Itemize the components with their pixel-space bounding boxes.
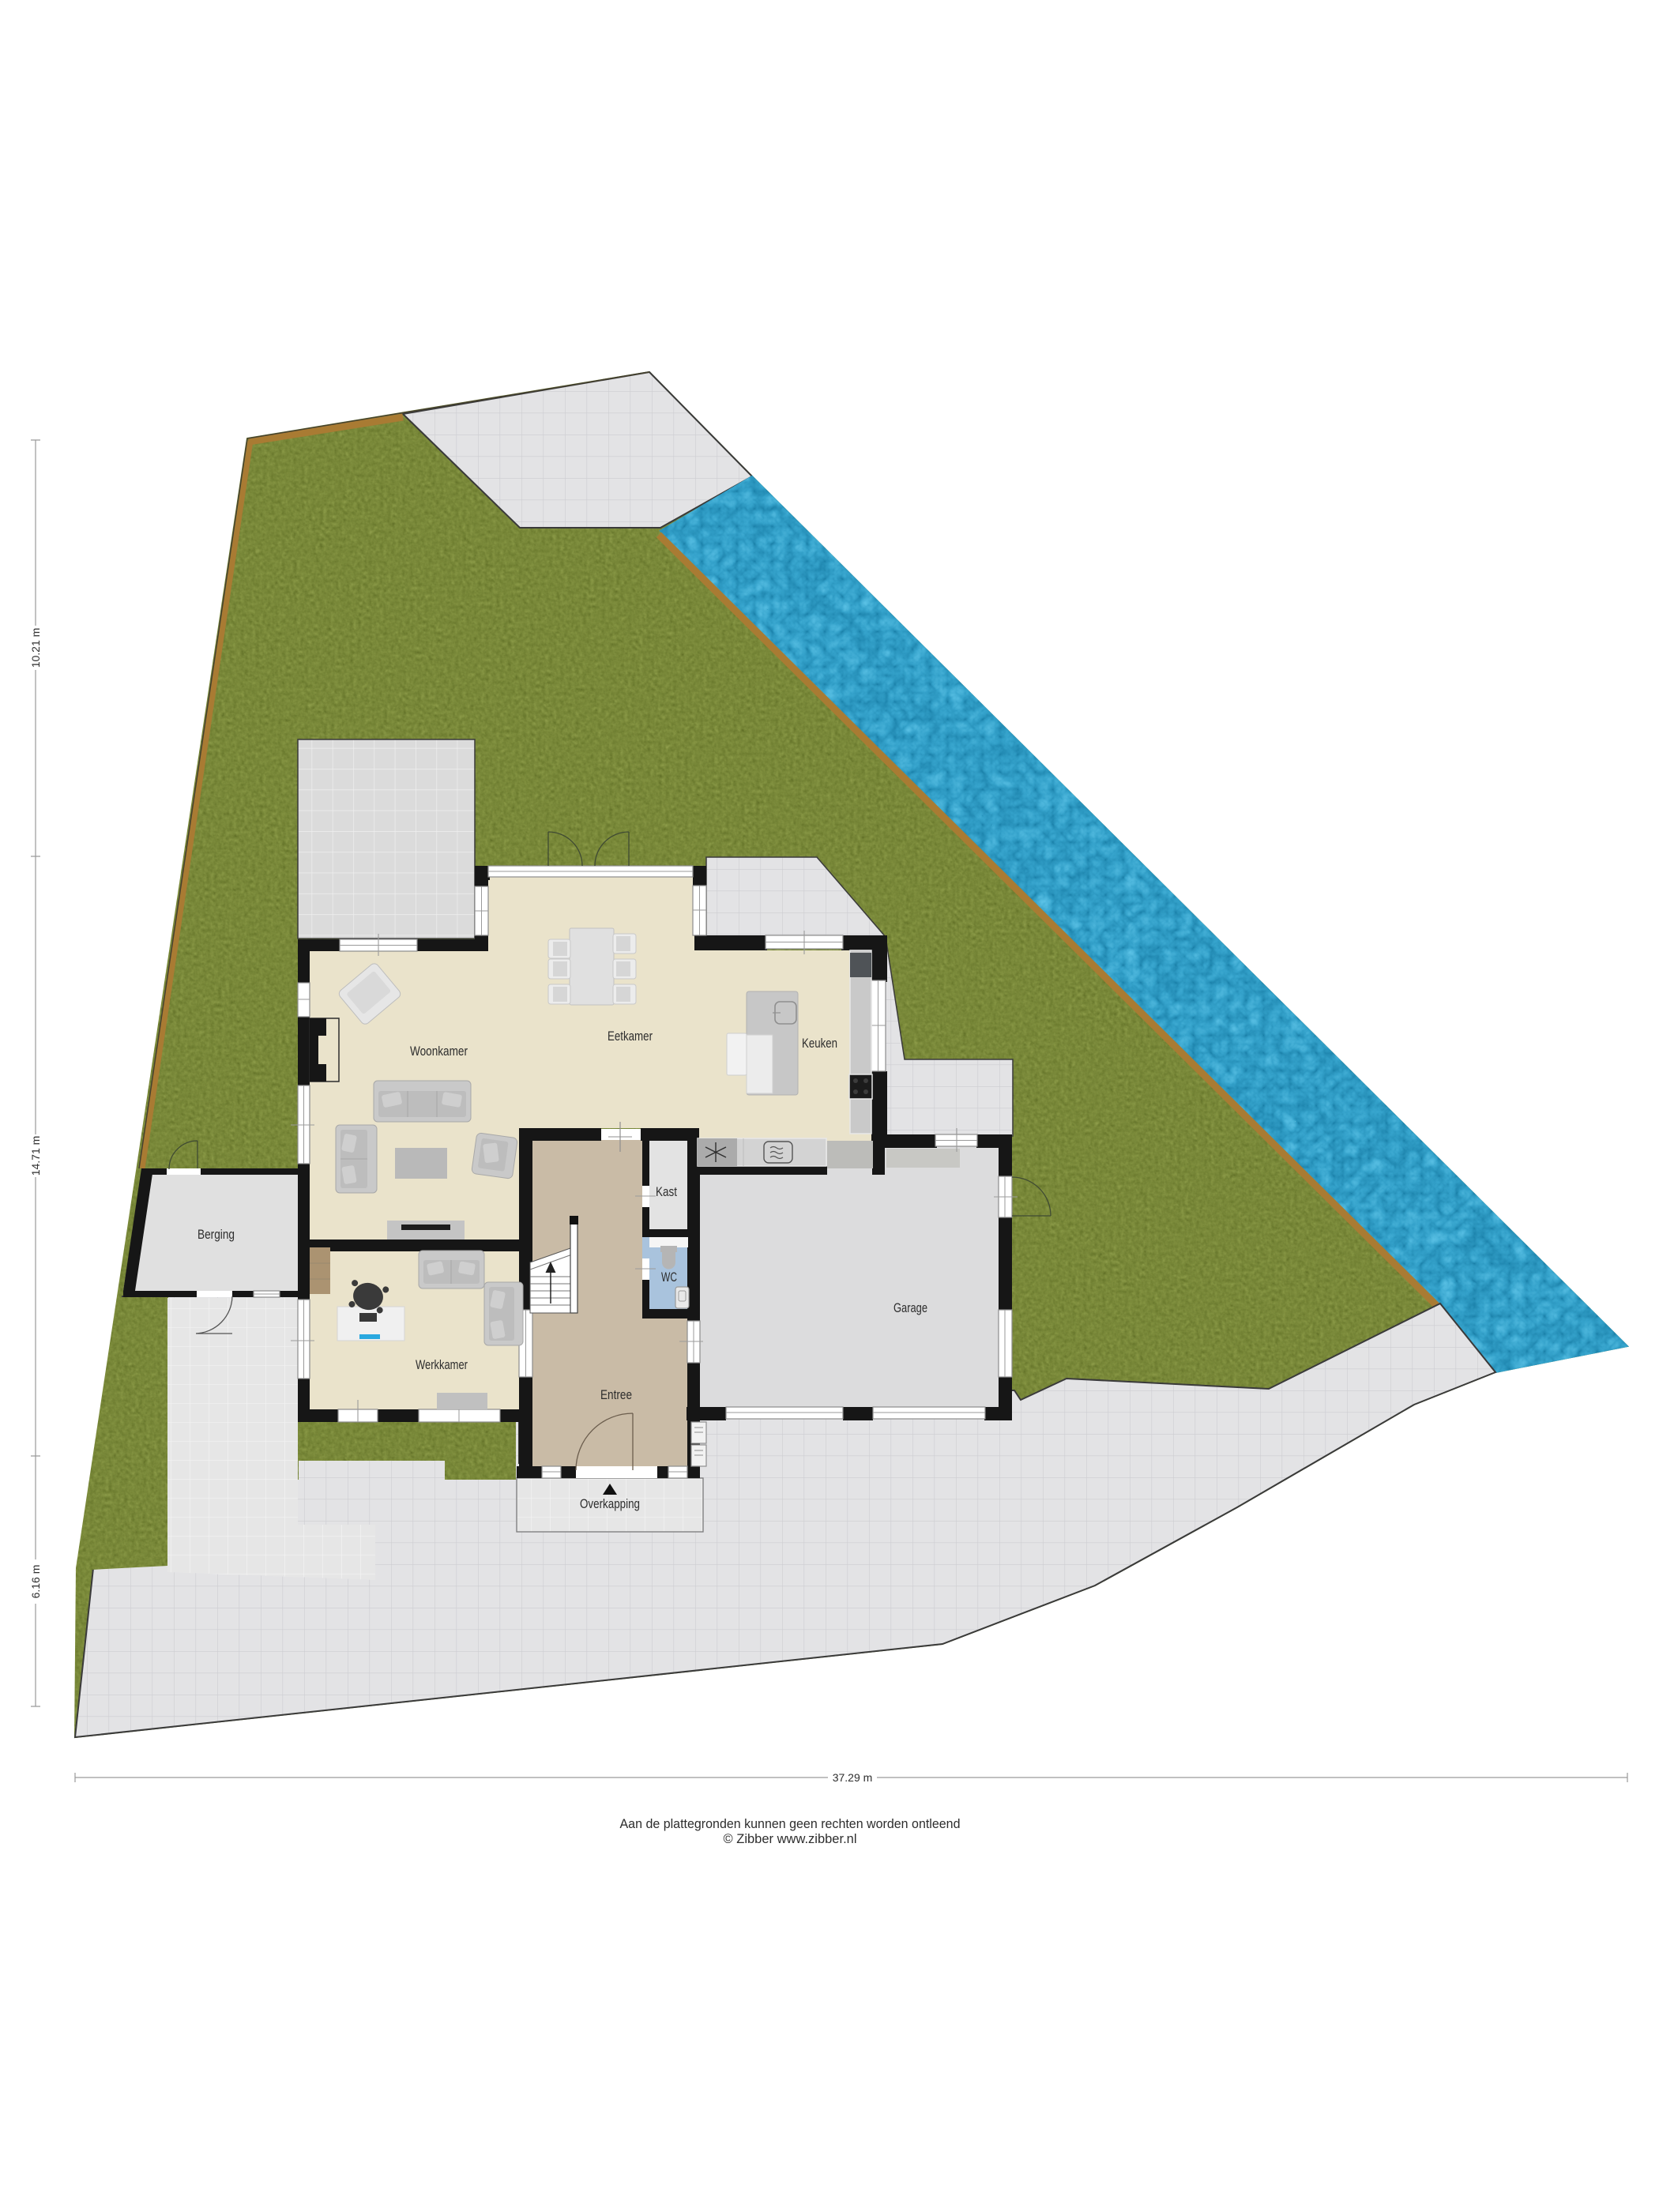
svg-text:Werkkamer: Werkkamer: [416, 1357, 468, 1372]
svg-text:6.16 m: 6.16 m: [29, 1565, 42, 1599]
svg-text:WC: WC: [661, 1270, 677, 1285]
svg-text:14.71 m: 14.71 m: [29, 1136, 42, 1176]
svg-text:© Zibber www.zibber.nl: © Zibber www.zibber.nl: [724, 1831, 857, 1846]
svg-text:Entree: Entree: [600, 1387, 632, 1402]
svg-text:37.29 m: 37.29 m: [833, 1771, 873, 1784]
svg-text:10.21 m: 10.21 m: [29, 628, 42, 668]
svg-text:Keuken: Keuken: [802, 1036, 837, 1051]
svg-text:Garage: Garage: [893, 1300, 927, 1315]
svg-text:Eetkamer: Eetkamer: [608, 1029, 653, 1044]
svg-text:Overkapping: Overkapping: [580, 1496, 640, 1511]
svg-text:Berging: Berging: [197, 1227, 235, 1242]
svg-text:Woonkamer: Woonkamer: [410, 1044, 468, 1059]
svg-text:Aan de plattegronden kunnen ge: Aan de plattegronden kunnen geen rechten…: [620, 1816, 961, 1831]
svg-text:Kast: Kast: [656, 1184, 677, 1199]
